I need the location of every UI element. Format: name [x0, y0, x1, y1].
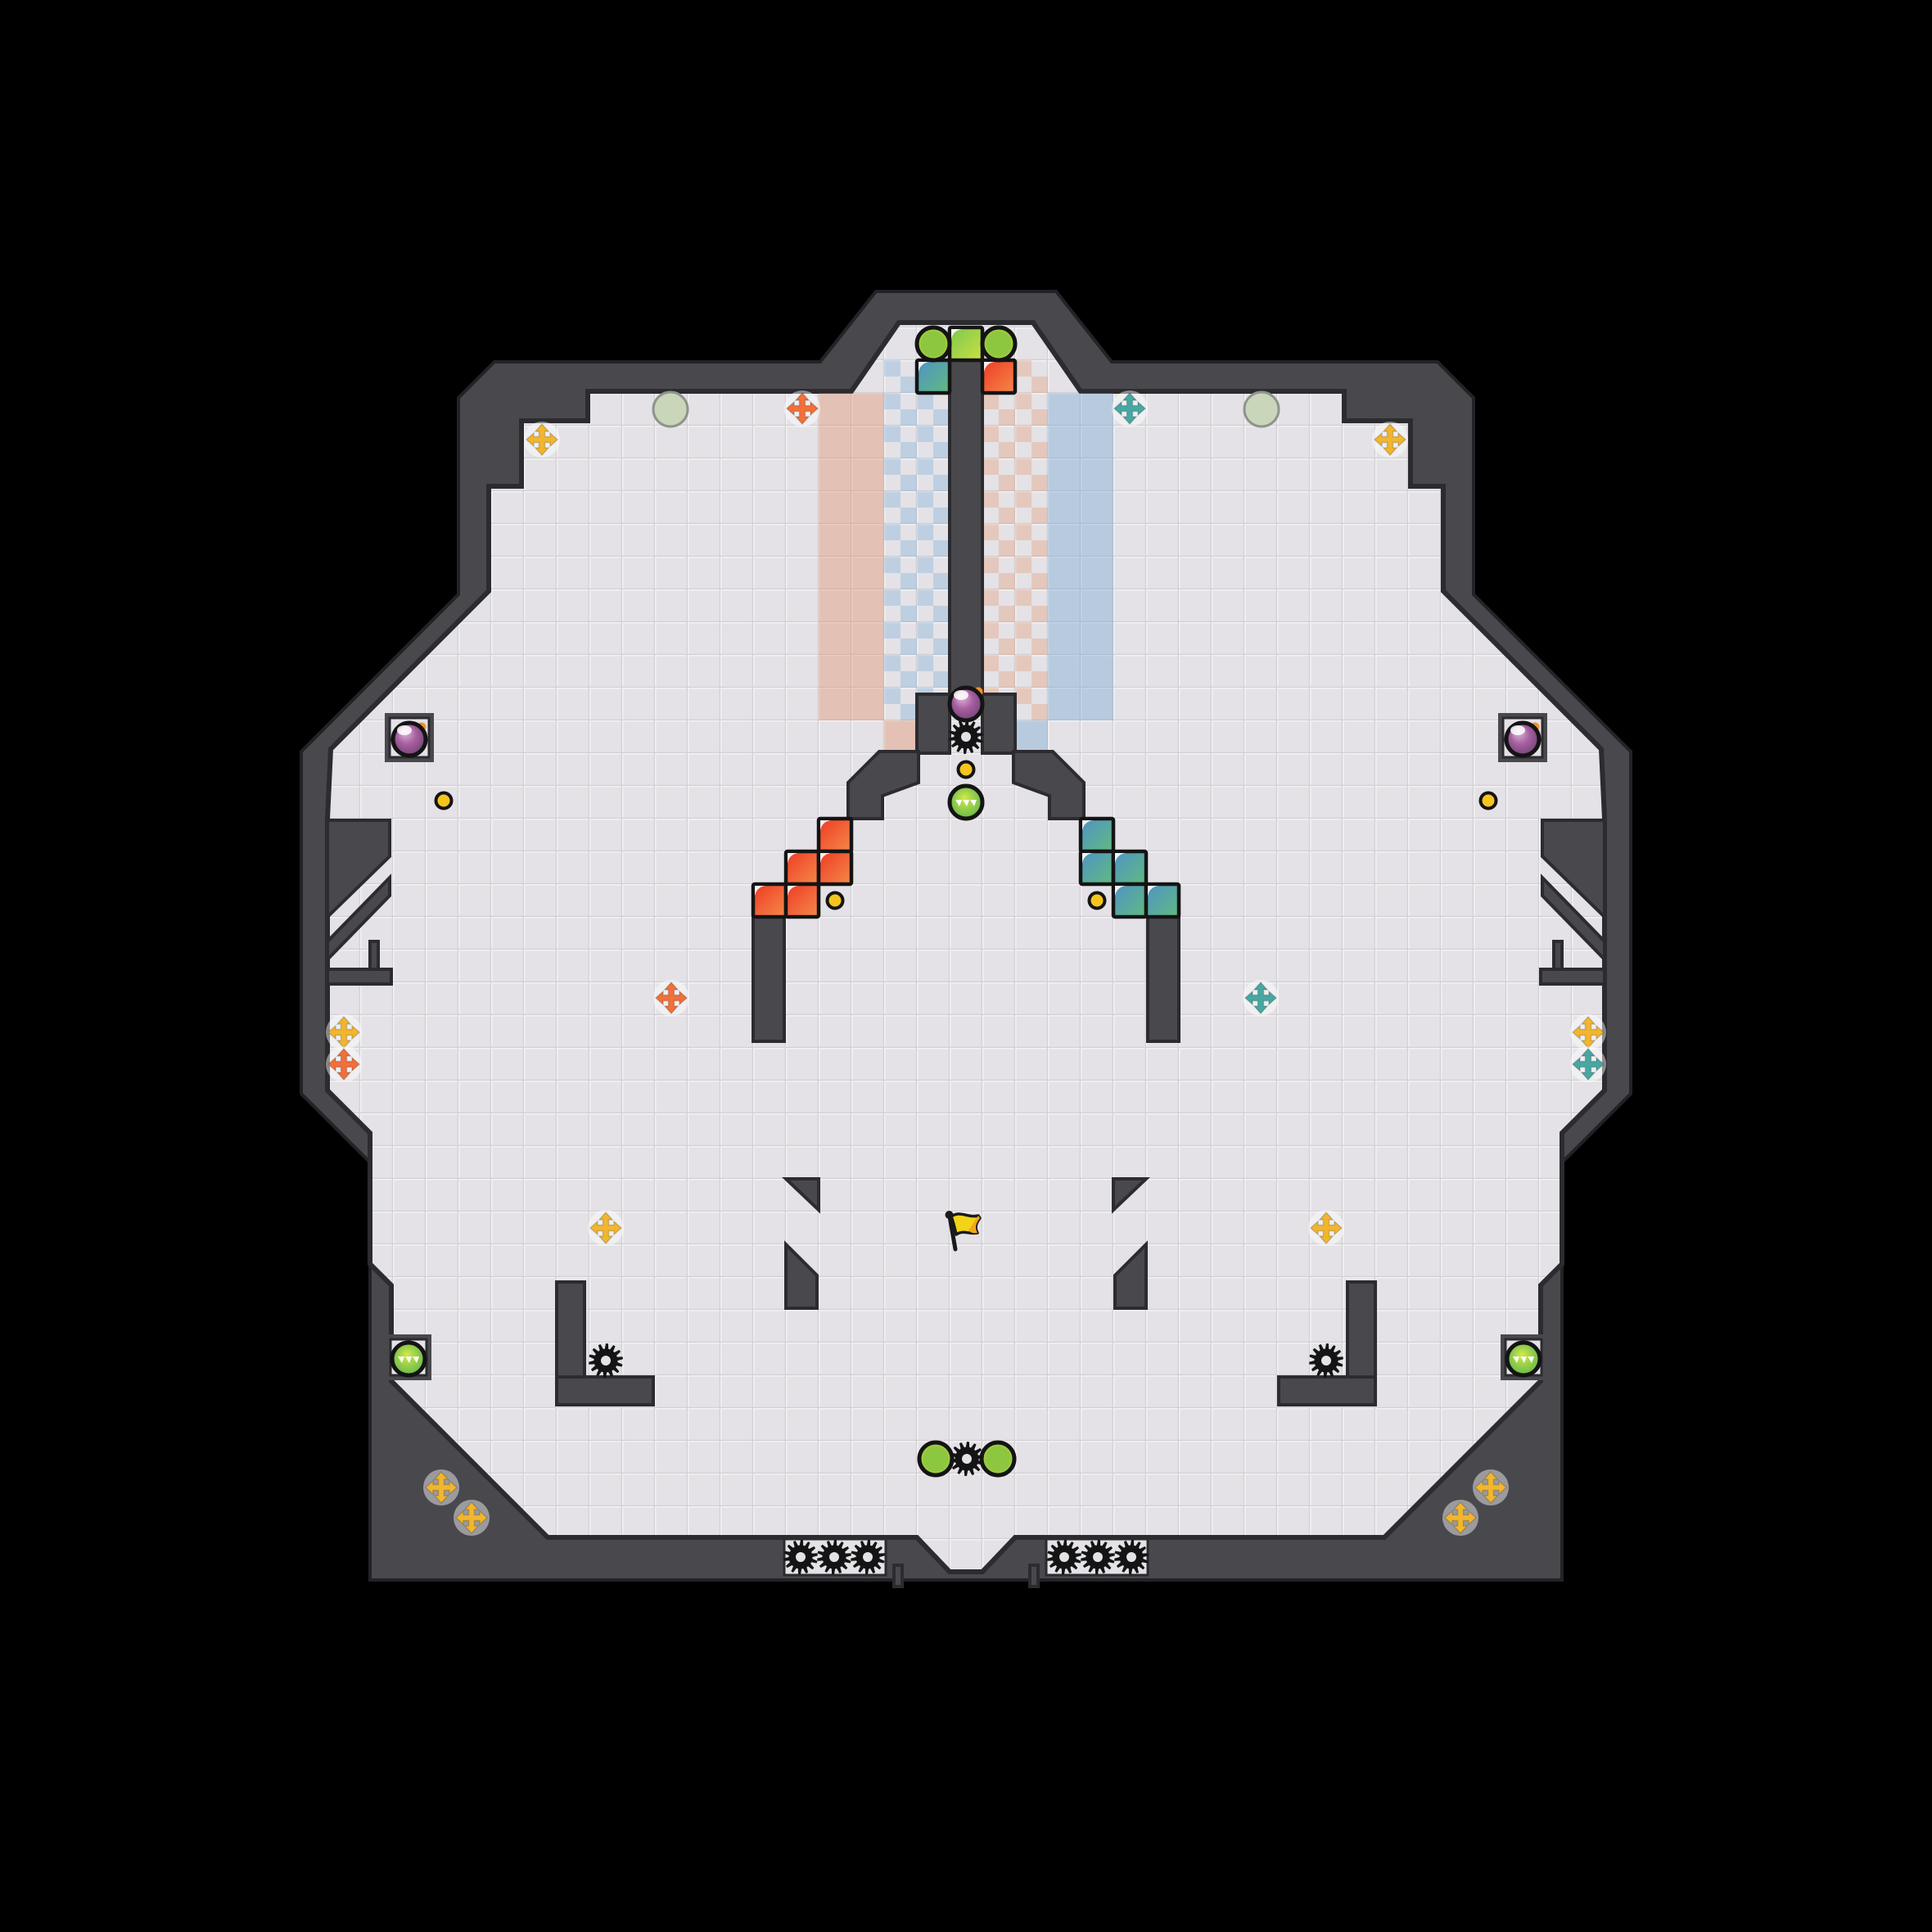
yellow-boost-cross — [326, 1014, 362, 1050]
circle — [919, 1442, 952, 1475]
inner-wall — [894, 1565, 902, 1587]
red-gate-tile — [982, 360, 1015, 393]
gear-hole — [1059, 1552, 1069, 1562]
inner-wall — [1148, 915, 1179, 1041]
team-endzone-blue — [884, 360, 950, 720]
team-endzone-pink — [982, 360, 1048, 720]
circle — [828, 893, 843, 909]
blue-gate-tile — [1081, 819, 1113, 851]
inner-wall — [1279, 1377, 1375, 1405]
bomb-highlight — [954, 690, 968, 700]
yellow-boost-cross — [1308, 1210, 1344, 1246]
teal-boost-cross — [1243, 980, 1279, 1016]
orange-boost-cross — [784, 390, 820, 427]
inner-wall — [1554, 941, 1562, 969]
grip-powerup — [950, 786, 982, 819]
circle — [653, 392, 688, 427]
yellow-boost-cross — [1570, 1014, 1606, 1050]
red-gate-tile — [753, 884, 786, 917]
yellow-boost-cross — [1372, 422, 1408, 458]
gear-hole — [863, 1552, 873, 1562]
yellow-boost-cross — [524, 422, 560, 458]
gear-hole — [796, 1552, 806, 1562]
bomb-powerup — [393, 723, 427, 756]
boost-pad — [919, 1442, 952, 1475]
inner-wall — [982, 694, 1015, 753]
circle — [959, 762, 974, 778]
team-zone-blue — [1015, 720, 1048, 752]
gold-dot — [959, 762, 974, 778]
boost-pad — [917, 327, 950, 360]
gear-hole — [962, 1454, 972, 1464]
inner-wall — [753, 915, 784, 1041]
inner-wall — [917, 694, 950, 753]
gold-dot — [1090, 893, 1105, 909]
inner-wall — [1541, 969, 1605, 984]
yellow-boost-cross — [454, 1500, 490, 1536]
blue-gate-tile — [1146, 884, 1179, 917]
bomb-powerup — [1506, 723, 1540, 756]
inner-wall — [1030, 1565, 1038, 1587]
circle — [436, 793, 452, 809]
teal-boost-cross — [1570, 1046, 1606, 1082]
inner-wall — [557, 1377, 653, 1405]
circle — [982, 1442, 1014, 1475]
grip-powerup — [392, 1343, 425, 1375]
red-gate-tile — [819, 819, 851, 851]
circle — [1244, 392, 1279, 427]
inner-wall — [327, 969, 391, 984]
green-gate-tile — [950, 327, 982, 360]
red-gate-tile — [819, 851, 851, 884]
orange-boost-cross — [653, 980, 689, 1016]
yellow-boost-cross — [1473, 1469, 1509, 1505]
red-gate-tile — [786, 851, 819, 884]
gear-hole — [961, 732, 971, 742]
gear-hole — [1093, 1552, 1103, 1562]
yellow-boost-cross — [1442, 1500, 1478, 1536]
red-gate-tile — [786, 884, 819, 917]
gear-hole — [601, 1356, 611, 1365]
game-map-canvas — [0, 0, 1932, 1932]
gold-dot — [436, 793, 452, 809]
inactive-gate-circle — [653, 392, 688, 427]
team-zone-pink — [884, 720, 917, 752]
gear-hole — [1126, 1552, 1136, 1562]
teal-boost-cross — [1112, 390, 1148, 427]
team-zone-pink — [819, 393, 884, 720]
bomb-highlight — [397, 725, 412, 735]
team-zone-blue — [1048, 393, 1113, 720]
gear-hole — [829, 1552, 839, 1562]
bomb-highlight — [1510, 725, 1525, 735]
gold-dot — [1481, 793, 1496, 809]
bomb-powerup — [950, 688, 983, 721]
blue-gate-tile — [1113, 851, 1146, 884]
circle — [1090, 893, 1105, 909]
boost-pad — [982, 1442, 1014, 1475]
blue-gate-tile — [917, 360, 950, 393]
boost-pad — [982, 327, 1015, 360]
inner-wall — [370, 941, 378, 969]
orange-boost-cross — [326, 1046, 362, 1082]
inactive-gate-circle — [1244, 392, 1279, 427]
yellow-boost-cross — [423, 1469, 459, 1505]
gear-hole — [1321, 1356, 1331, 1365]
circle — [982, 327, 1015, 360]
blue-gate-tile — [1081, 851, 1113, 884]
yellow-boost-cross — [588, 1210, 624, 1246]
inner-wall — [950, 360, 982, 694]
gold-dot — [828, 893, 843, 909]
blue-gate-tile — [1113, 884, 1146, 917]
circle — [917, 327, 950, 360]
circle — [1481, 793, 1496, 809]
grip-powerup — [1507, 1343, 1540, 1375]
game-map-stage — [0, 0, 1932, 1932]
